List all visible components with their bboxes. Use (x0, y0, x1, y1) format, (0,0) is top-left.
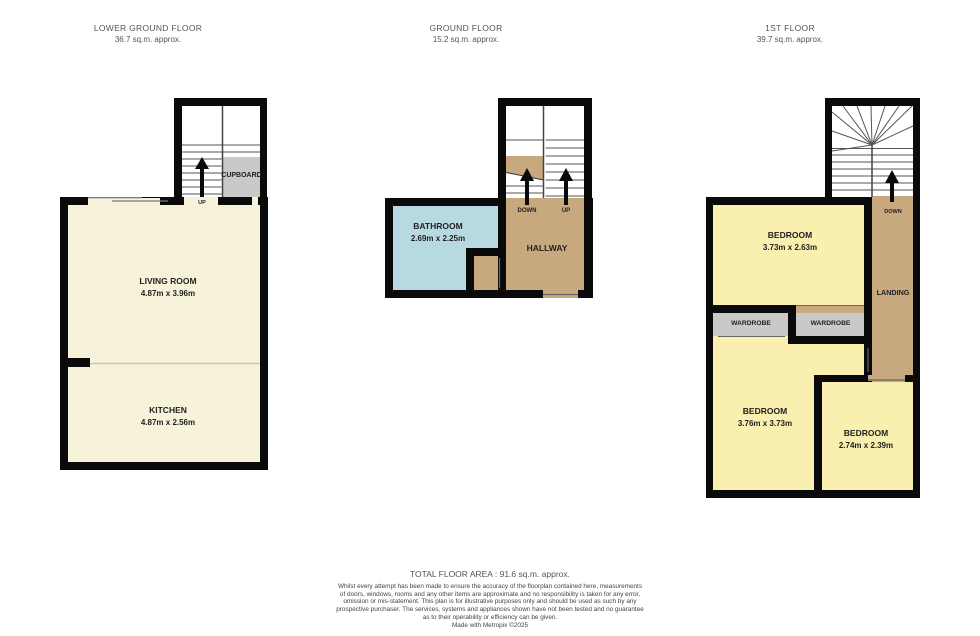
floor-title: GROUND FLOOR (366, 23, 566, 34)
wardrobe-left-label: WARDROBE (714, 320, 788, 327)
ff-wardrobe-right-doorway (796, 305, 864, 313)
room-name: BEDROOM (796, 428, 936, 440)
room-dims: 4.87m x 2.56m (98, 417, 238, 429)
hallway-label: HALLWAY (507, 243, 587, 253)
bedroom-left-label: BEDROOM 3.76m x 3.73m (690, 406, 840, 429)
floor-area: 39.7 sq.m. approx. (690, 34, 890, 45)
gf-entrance-door-opening (543, 290, 578, 298)
floor-area: 15.2 sq.m. approx. (366, 34, 566, 45)
disclaimer-line: of doors, windows, rooms and any other i… (240, 591, 740, 599)
wardrobe-right-label: WARDROBE (797, 320, 864, 327)
ff-bedroom-right-top-wall-b (905, 375, 913, 382)
bedroom-top-label: BEDROOM 3.73m x 2.63m (715, 230, 865, 253)
cupboard-label: CUPBOARD (204, 172, 279, 179)
lower-ground-floor-header: LOWER GROUND FLOOR 36.7 sq.m. approx. (48, 23, 248, 45)
disclaimer-line: omission or mis-statement. This plan is … (240, 598, 740, 606)
ground-floor-header: GROUND FLOOR 15.2 sq.m. approx. (366, 23, 566, 45)
room-name: BEDROOM (715, 230, 865, 242)
first-floor-header: 1ST FLOOR 39.7 sq.m. approx. (690, 23, 890, 45)
ff-bedroom-top (713, 205, 864, 305)
disclaimer-line: Whilst every attempt has been made to en… (240, 583, 740, 591)
ff-bedroom-right-top-wall-a (814, 375, 868, 382)
gf-nook-wall-vertical (466, 256, 474, 298)
living-room-label: LIVING ROOM 4.87m x 3.96m (98, 276, 238, 299)
room-name: KITCHEN (98, 405, 238, 417)
disclaimer-line: as to their operability or efficiency ca… (240, 614, 740, 622)
ff-landing-left-wall-mid (864, 313, 872, 347)
room-dims: 2.69m x 2.25m (388, 233, 488, 245)
ff-wardrobe-right-bottom-wall (796, 336, 872, 344)
gf-up-label: UP (552, 208, 580, 214)
room-dims: 4.87m x 3.96m (98, 288, 238, 300)
total-floor-area: TOTAL FLOOR AREA : 91.6 sq.m. approx. (240, 569, 740, 579)
made-with-credit: Made with Metropix ©2025 (240, 622, 740, 630)
floor-area: 36.7 sq.m. approx. (48, 34, 248, 45)
lgf-window-opening (88, 198, 160, 206)
disclaimer-line: prospective purchaser. The services, sys… (240, 606, 740, 614)
floor-title: LOWER GROUND FLOOR (48, 23, 248, 34)
room-dims: 2.74m x 2.39m (796, 440, 936, 452)
ff-wardrobe-divider-wall (788, 305, 796, 344)
gf-hallway-nook (474, 256, 498, 290)
lgf-up-label: UP (190, 200, 214, 206)
landing-label: LANDING (871, 288, 915, 297)
ff-wardrobe-left-top-wall (713, 305, 795, 313)
lgf-cupboard-door-opening (252, 197, 258, 206)
gf-bathroom-right-wall (498, 198, 506, 256)
floorplan-page: LOWER GROUND FLOOR 36.7 sq.m. approx. GR… (0, 0, 980, 636)
footer: TOTAL FLOOR AREA : 91.6 sq.m. approx. Wh… (240, 569, 740, 629)
gf-bathroom (393, 206, 466, 290)
room-name: BATHROOM (388, 221, 488, 233)
gf-staircase (506, 106, 584, 198)
ff-staircase (832, 106, 913, 197)
ff-down-label: DOWN (877, 209, 909, 215)
bedroom-right-label: BEDROOM 2.74m x 2.39m (796, 428, 936, 451)
ff-bedroom-left-extension (796, 344, 864, 375)
ff-bedroom-right-door-opening (868, 375, 905, 381)
kitchen-label: KITCHEN 4.87m x 2.56m (98, 405, 238, 428)
room-name: BEDROOM (690, 406, 840, 418)
gf-down-label: DOWN (513, 208, 541, 214)
room-dims: 3.73m x 2.63m (715, 242, 865, 254)
floor-title: 1ST FLOOR (690, 23, 890, 34)
room-name: LIVING ROOM (98, 276, 238, 288)
bathroom-label: BATHROOM 2.69m x 2.25m (388, 221, 488, 244)
